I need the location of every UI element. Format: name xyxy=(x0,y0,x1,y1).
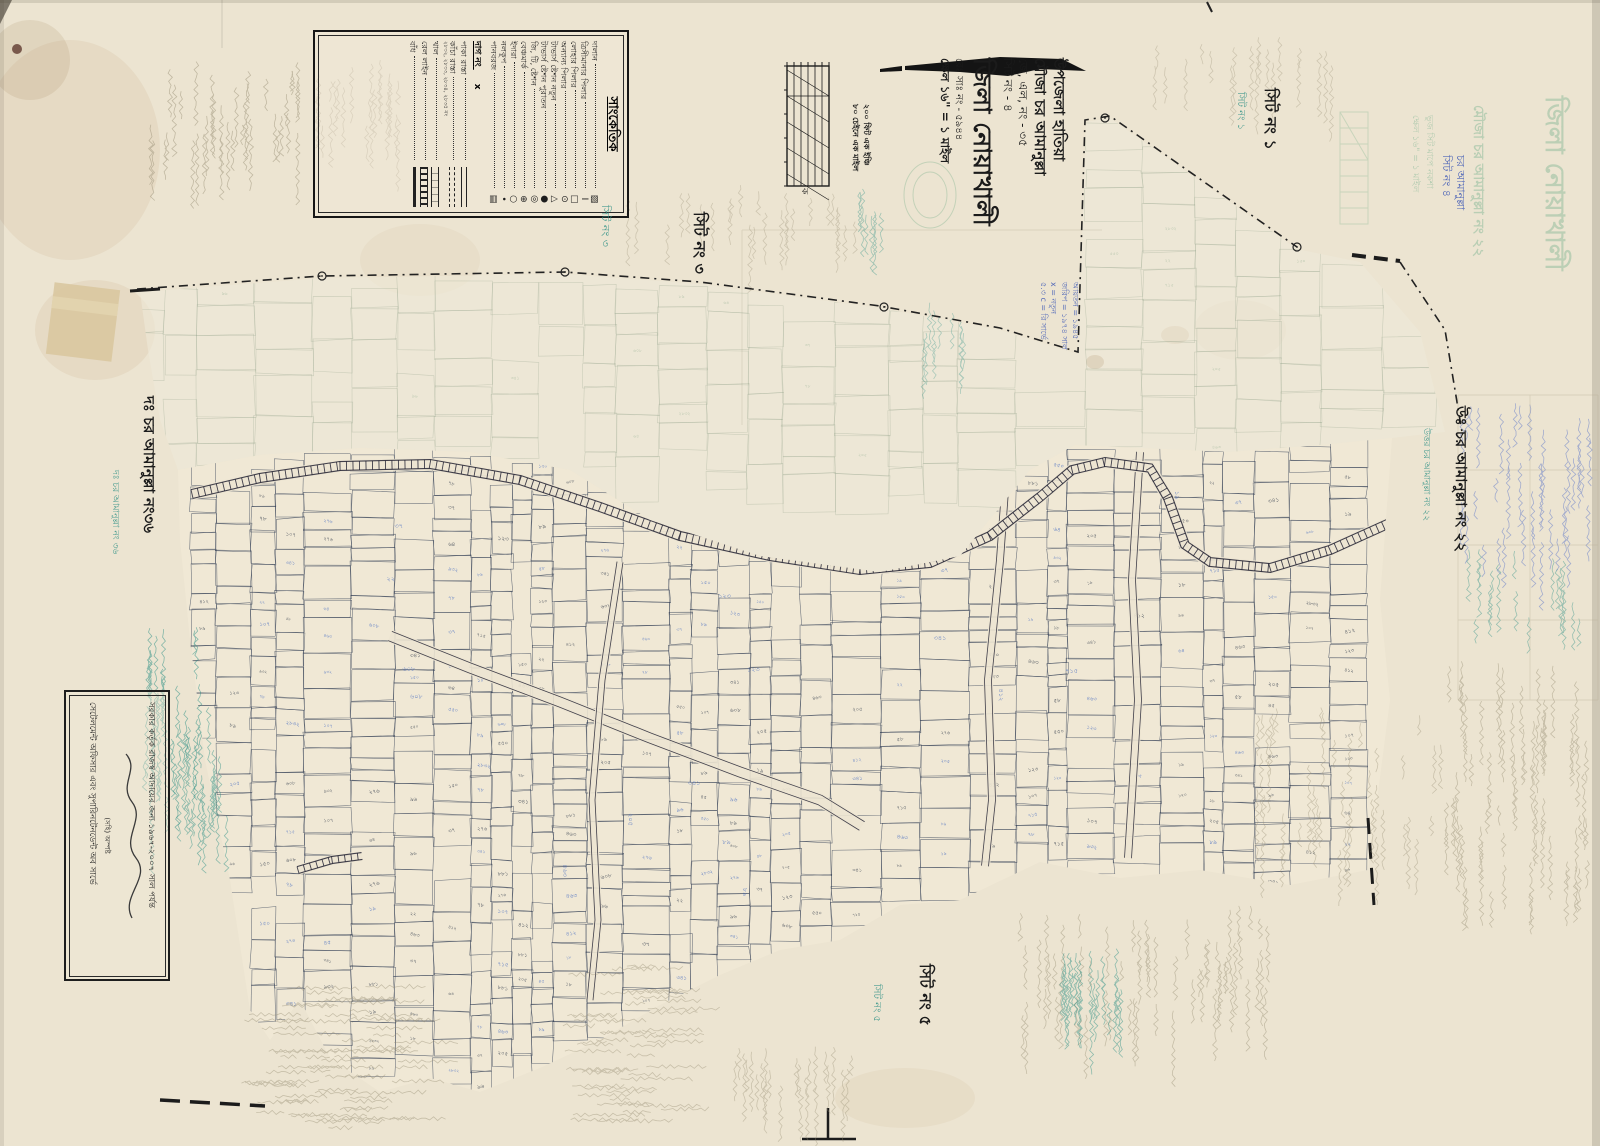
svg-text:৩৪১: ৩৪১ xyxy=(511,376,520,381)
legend-leader xyxy=(514,62,515,188)
ghost-district-label: জিলা নোয়াখালী xyxy=(1520,96,1575,346)
svg-text:২২: ২২ xyxy=(387,575,395,583)
svg-text:৮৯: ৮৯ xyxy=(722,838,731,846)
svg-text:৩৭: ৩৭ xyxy=(676,628,682,634)
stamp-line-1: সরকার কর্তৃক রাজস্ব আদায়ের জন্য ১৯৬৭-২০… xyxy=(144,702,158,969)
svg-text:৭১৫: ৭১৫ xyxy=(1065,667,1078,675)
sheet-label-5-handwritten: সিট নং ৫ xyxy=(868,984,884,1050)
svg-text:৩৭: ৩৭ xyxy=(805,344,811,349)
legend-item: লোহার পিলার□ xyxy=(569,41,579,207)
svg-text:৭১৫: ৭১৫ xyxy=(852,911,861,917)
legend-line-item: বাঁধ xyxy=(408,41,417,207)
svg-text:৭৮: ৭৮ xyxy=(448,595,456,601)
stamp-signature-area: (সহি) অস্পষ্ট xyxy=(101,702,142,969)
legend-leader xyxy=(545,111,546,188)
svg-text:৭১৫: ৭১৫ xyxy=(1165,284,1174,289)
legend-item-symbol-icon: □ xyxy=(569,191,579,207)
svg-text:২২: ২২ xyxy=(538,657,544,663)
signature-squiggle xyxy=(116,746,142,926)
svg-text:৯৬: ৯৬ xyxy=(1178,614,1184,619)
svg-text:১০৭: ১০৭ xyxy=(259,622,270,628)
legend-item-label: ইদারা xyxy=(509,41,518,59)
svg-text:৮৮১: ৮৮১ xyxy=(518,953,528,958)
certification-stamp-box: সরকার কর্তৃক রাজস্ব আদায়ের জন্য ১৯৬৭-২০… xyxy=(64,690,170,981)
legend-item-label: অন্যান্য পিলার xyxy=(559,41,568,88)
svg-text:৩৭: ৩৭ xyxy=(448,505,456,512)
north-mouza-label: উঃ চর আমানুল্লা নং ২২ xyxy=(1434,406,1472,652)
svg-text:৮৮১: ৮৮১ xyxy=(498,871,509,877)
svg-text:২০৫: ২০৫ xyxy=(627,813,635,826)
legend-leader xyxy=(436,58,437,160)
legend-item: নলকূপ• xyxy=(498,41,508,207)
legend-item-symbol-icon: △ xyxy=(549,191,559,207)
svg-text:৪৬৩: ৪৬৩ xyxy=(642,636,650,641)
legend-item-label: জি, টি, ষ্টেশন xyxy=(529,41,538,86)
svg-text:২৭৬: ২৭৬ xyxy=(477,826,488,832)
legend-leader xyxy=(565,91,566,188)
svg-text:৫৮: ৫৮ xyxy=(897,737,905,744)
svg-text:৭৮: ৭৮ xyxy=(642,671,648,676)
title-block: উপজেলা হাতিয়া মৌজা চর আমানুল্লা জে, এল,… xyxy=(893,58,1068,300)
svg-text:১২৩: ১২৩ xyxy=(747,665,760,673)
svg-text:৮৯: ৮৯ xyxy=(199,627,205,632)
legend-item-symbol-icon: ⊙ xyxy=(559,191,569,207)
svg-text:৪১২: ৪১২ xyxy=(199,600,209,605)
svg-text:১৫০: ১৫০ xyxy=(410,676,419,681)
legend-leader xyxy=(555,104,556,188)
svg-text:১৫০: ১৫০ xyxy=(518,663,527,669)
legend-item: টাভার্স ষ্টেশন নতুন△ xyxy=(549,41,559,207)
svg-text:৩৭: ৩৭ xyxy=(394,522,402,530)
dag-label: দাগ নং xyxy=(472,41,482,67)
legend-item: ত্রিসীমানার পিলারI xyxy=(579,41,589,207)
legend-item-symbol-icon: I xyxy=(579,191,589,207)
svg-text:৯৬: ৯৬ xyxy=(676,807,684,814)
svg-text:৩৭: ৩৭ xyxy=(756,886,764,893)
svg-text:১২৩: ১২৩ xyxy=(497,536,509,543)
svg-text:১৮: ১৮ xyxy=(1178,583,1186,589)
svg-text:৪১২: ৪১২ xyxy=(566,931,577,938)
legend-leader xyxy=(453,77,454,160)
svg-text:১২৩: ১২৩ xyxy=(718,592,731,600)
svg-text:৭১৫: ৭১৫ xyxy=(497,962,509,969)
blue-title-note-line: ৫.৩ c = রি সার্ভে xyxy=(1037,282,1048,366)
svg-text:২৮৩২: ২৮৩২ xyxy=(679,412,691,417)
svg-text:১২৩: ১২৩ xyxy=(538,599,547,605)
stamp-line-2: সেটেলমেন্ট অফিসার এবং সুপারিনটেনডেন্ট অব… xyxy=(85,702,99,969)
svg-text:৪৫: ৪৫ xyxy=(323,940,331,947)
legend-line-symbol-icon xyxy=(420,167,428,207)
svg-text:৬০৮: ৬০৮ xyxy=(633,349,643,354)
svg-text:৩৪১: ৩৪১ xyxy=(1235,773,1244,779)
north-mouza-handwritten: উত্তর চর আমানুল্লা নং ২২ xyxy=(1420,428,1434,643)
svg-text:৯৬: ৯৬ xyxy=(477,1084,485,1091)
svg-text:৫৫০: ৫৫০ xyxy=(1053,729,1064,736)
svg-text:৯৩২: ৯৩২ xyxy=(1053,555,1062,561)
scale-text: ক্ষেল ১৬" = ১ মাইল xyxy=(937,58,952,300)
svg-text:৬৪: ৬৪ xyxy=(723,301,729,306)
legend-line-note: ২৮৩২, ২৮৩৩, ২৮৩৪, ২৮৩৫ নং xyxy=(442,41,448,207)
svg-text:১২৩: ১২৩ xyxy=(229,690,240,696)
scale-letter: ক xyxy=(798,188,812,208)
upazila-name: উপজেলা হাতিয়া xyxy=(1049,58,1068,300)
svg-text:৩৪১: ৩৪১ xyxy=(730,680,740,686)
svg-text:৭৮: ৭৮ xyxy=(477,1024,483,1029)
svg-text:১০৭: ১০৭ xyxy=(324,818,334,824)
svg-text:৮৯: ৮৯ xyxy=(730,820,737,826)
legend-leader xyxy=(595,64,596,188)
legend-leader xyxy=(585,102,586,188)
svg-text:৪৬৩: ৪৬৩ xyxy=(561,864,569,877)
svg-text:৫৮: ৫৮ xyxy=(1235,695,1243,701)
blue-corner-line-1: চর আমানুল্লা xyxy=(1453,155,1467,275)
legend-item-label: ত্রিসীমানার পিলার xyxy=(579,41,588,99)
svg-text:৪১২: ৪১২ xyxy=(997,689,1005,702)
blue-title-annotations: আয়তন = ১৯৪৫জরিপ = ১৯৭৪ সালx = নতুন৫.৩ c… xyxy=(1005,282,1080,366)
ghost-green-grid xyxy=(1340,112,1368,224)
svg-text:২০৫: ২০৫ xyxy=(852,707,862,713)
blue-title-note-line: আয়তন = ১৯৪৫ xyxy=(1069,282,1080,366)
svg-text:২০৫: ২০৫ xyxy=(1087,533,1097,539)
legend-leader xyxy=(465,78,466,160)
svg-text:৬৪: ৬৪ xyxy=(323,607,330,613)
svg-text:৫৫০: ৫৫০ xyxy=(498,741,509,748)
south-mouza-handwritten: দঃ চর আমানুল্লা নং ৩৬ xyxy=(108,470,123,660)
sheet-label-3: সিট নং ৩ xyxy=(678,212,712,304)
sheet-label-5: সিট নং ৫ xyxy=(902,964,938,1050)
svg-text:১২৩: ১২৩ xyxy=(1209,733,1217,738)
svg-text:১০৭: ১০৭ xyxy=(1344,734,1354,740)
svg-text:১৯: ১৯ xyxy=(369,906,377,913)
svg-text:৮৯: ৮৯ xyxy=(741,888,749,897)
scale-note-2: ৮০ চেইনে এক মাইল xyxy=(850,104,861,204)
svg-text:৯৬: ৯৬ xyxy=(730,914,738,920)
svg-text:১০৭: ১০৭ xyxy=(701,710,710,716)
svg-text:৩৭: ৩৭ xyxy=(448,629,456,636)
svg-text:৬৪: ৬৪ xyxy=(633,435,639,440)
scale-notes: ২০০ ফিট এক ইঞ্চি ৮০ চেইনে এক মাইল xyxy=(838,104,872,204)
sheet-label-3-handwritten: সিট নং ৩ xyxy=(596,205,614,295)
svg-text:৯৬: ৯৬ xyxy=(410,797,418,803)
svg-text:২২: ২২ xyxy=(676,544,683,551)
legend-item-symbol-icon: ▤ xyxy=(488,191,498,207)
svg-text:৮৯: ৮৯ xyxy=(941,822,947,827)
svg-text:২৭৬: ২৭৬ xyxy=(730,876,740,882)
blue-corner-annotation: চর আমানুল্লা সিট নং ৪ xyxy=(1437,155,1467,275)
legend-leader xyxy=(524,72,525,188)
svg-text:৪৫: ৪৫ xyxy=(1268,703,1275,709)
legend-line-label: খাল xyxy=(431,41,440,55)
registry-number: রেঃ সাঃ নং - ৫৯৪৪ xyxy=(952,58,965,300)
svg-text:৮৮১: ৮৮১ xyxy=(1028,481,1039,488)
svg-text:১৫০: ১৫০ xyxy=(1297,260,1306,265)
svg-text:২০৫: ২০৫ xyxy=(782,864,790,869)
svg-text:৪৫: ৪৫ xyxy=(700,795,707,801)
svg-text:১৯: ১৯ xyxy=(1178,763,1184,768)
dag-symbol: x xyxy=(472,84,482,90)
svg-text:১৯: ১৯ xyxy=(941,852,947,857)
svg-text:১০৭: ১০৭ xyxy=(285,532,296,539)
svg-text:২৭৬: ২৭৬ xyxy=(941,731,951,736)
svg-text:১২৩: ১২৩ xyxy=(1344,755,1353,761)
svg-text:১৫০: ১৫০ xyxy=(701,580,711,586)
svg-text:২০৫: ২০৫ xyxy=(1212,367,1221,372)
tape-piece xyxy=(46,282,120,362)
svg-text:২৭৬: ২৭৬ xyxy=(642,855,653,862)
svg-text:৮৯: ৮৯ xyxy=(477,572,484,578)
legend-item: জি, টি, ষ্টেশন◎ xyxy=(528,41,538,207)
legend-item-label: লোহার পিলার xyxy=(569,41,578,87)
svg-text:১০৭: ১০৭ xyxy=(642,998,651,1004)
ghost-scale-note: ভুজ সিট মাপে নকশা ক্ষেল ১৬" = ১ মাইল xyxy=(1405,115,1435,265)
legend-line-item: কাঁচা রাস্তা xyxy=(448,41,457,207)
svg-text:২৭৬: ২৭৬ xyxy=(601,548,610,553)
legend-title: সাংকেতিক xyxy=(601,41,622,207)
svg-text:৩৭: ৩৭ xyxy=(642,942,650,948)
svg-text:৪৫: ৪৫ xyxy=(538,980,544,985)
stamp-signature-label: (সহি) অস্পষ্ট xyxy=(101,702,113,969)
legend-leader xyxy=(414,56,415,160)
pencil-notes-bottom-right xyxy=(1018,906,1270,1087)
svg-text:৯৩২: ৯৩২ xyxy=(323,984,334,991)
svg-text:২২: ২২ xyxy=(259,600,265,605)
legend-line-item: রেল লাইন xyxy=(419,41,428,207)
legend-line-symbol-icon xyxy=(461,167,467,207)
svg-text:১৯: ১৯ xyxy=(1028,617,1034,622)
pencil-notes-right-margin xyxy=(1444,661,1589,934)
legend-item: ইদারা○ xyxy=(508,41,518,207)
legend-dag-row: দাগ নং x xyxy=(470,41,485,207)
legend-line-item: খাল xyxy=(431,41,440,207)
svg-text:৬৪: ৬৪ xyxy=(1178,648,1185,654)
svg-text:৬০৮: ৬০৮ xyxy=(730,708,741,714)
stamp-content: সরকার কর্তৃক রাজস্ব আদায়ের জন্য ১৯৬৭-২০… xyxy=(70,698,160,973)
svg-text:৭৮: ৭৮ xyxy=(1028,832,1036,838)
svg-text:২২: ২২ xyxy=(897,683,903,688)
svg-text:৩৪১: ৩৪১ xyxy=(1267,879,1279,887)
blue-corner-line-2: সিট নং ৪ xyxy=(1438,155,1452,275)
svg-text:৭১৫: ৭১৫ xyxy=(1053,841,1064,847)
svg-text:৬০৮: ৬০৮ xyxy=(410,692,423,700)
legend-item-symbol-icon: • xyxy=(498,191,508,207)
blue-cursive-right-table xyxy=(1460,403,1593,610)
svg-text:২০৫: ২০৫ xyxy=(858,454,867,459)
svg-text:৪১২: ৪১২ xyxy=(566,643,575,648)
legend-leader xyxy=(535,89,536,188)
svg-text:৮৯: ৮৯ xyxy=(897,863,903,868)
scale-note-1: ২০০ ফিট এক ইঞ্চি xyxy=(861,104,872,204)
legend-line-symbol-icon xyxy=(449,167,455,207)
legend-line-symbol-icon xyxy=(410,167,416,207)
svg-text:২২: ২২ xyxy=(410,912,417,917)
sheet-number: সিট নং - ৪ xyxy=(1001,58,1016,300)
legend-item: টাভার্স ষ্টেশন পুরাতন● xyxy=(539,41,549,207)
legend-item-symbol-icon: ○ xyxy=(508,191,518,207)
svg-text:৩৪১: ৩৪১ xyxy=(688,779,701,787)
legend-item: অন্যান্য পিলার⊙ xyxy=(559,41,569,207)
svg-text:৭১৫: ৭১৫ xyxy=(286,830,295,835)
svg-text:৯৬: ৯৬ xyxy=(730,797,738,803)
blue-title-note-line: x = নতুন xyxy=(1048,282,1059,366)
legend-leader xyxy=(494,73,495,188)
svg-text:৯৬: ৯৬ xyxy=(229,861,235,866)
svg-text:৩৭: ৩৭ xyxy=(409,958,417,965)
legend-line-label: রেল লাইন xyxy=(419,41,428,75)
legend-item-symbol-icon: ⊕ xyxy=(518,191,528,207)
legend-box: সাংকেতিক দালান▨ত্রিসীমানার পিলারIলোহার প… xyxy=(313,30,629,218)
svg-text:৭১৫: ৭১৫ xyxy=(897,805,907,811)
svg-text:৯৩২: ৯৩২ xyxy=(324,789,333,795)
legend-item-symbol-icon: ◎ xyxy=(528,191,538,207)
svg-text:৮৯: ৮৯ xyxy=(1209,840,1217,846)
svg-text:৩৪১: ৩৪১ xyxy=(286,561,295,566)
svg-text:৩৪১: ৩৪১ xyxy=(852,867,862,873)
svg-text:৫৫০: ৫৫০ xyxy=(812,911,822,917)
legend-line-label: পাকা রাস্তা xyxy=(459,41,468,75)
svg-text:৬০৮: ৬০৮ xyxy=(286,857,297,864)
svg-text:১৮: ১৮ xyxy=(1053,626,1060,632)
svg-text:৮৯: ৮৯ xyxy=(756,787,762,792)
svg-text:১৯: ১৯ xyxy=(1344,511,1351,518)
blue-title-note-line: জরিপ = ১৯৭৪ সাল xyxy=(1058,282,1069,366)
sheet-label-1: সিট নং ১ xyxy=(1247,88,1283,183)
legend-item-label: দালান xyxy=(589,41,598,61)
scanned-map-sheet: ৯৬৯৬৩৪১৬০৮৬৪৮৯২৮৩২৬৪৩৭৭৮২০৫৫৫০২৮৩২২২৭১৫২… xyxy=(0,0,1600,1146)
svg-text:২২: ২২ xyxy=(676,898,684,905)
svg-text:২০৫: ২০৫ xyxy=(600,760,610,767)
svg-text:৪৬৩: ৪৬৩ xyxy=(1212,445,1222,450)
faint-margin-table xyxy=(1458,395,1598,700)
svg-text:৬০৮: ৬০৮ xyxy=(1306,529,1315,535)
svg-text:১২৩: ১২৩ xyxy=(1053,775,1061,780)
svg-text:৬৪: ৬৪ xyxy=(448,992,454,997)
legend-leader xyxy=(425,78,426,160)
svg-text:৮৮১: ৮৮১ xyxy=(369,982,379,988)
mouza-name: মৌজা চর আমানুল্লা xyxy=(1031,58,1050,300)
svg-text:৭৮: ৭৮ xyxy=(259,516,267,523)
svg-text:৩৪১: ৩৪১ xyxy=(676,975,687,981)
legend-leader xyxy=(575,90,576,188)
svg-text:৩৪১: ৩৪১ xyxy=(934,634,947,642)
svg-text:১৫০: ১৫০ xyxy=(1268,595,1277,600)
svg-text:৫৮: ৫৮ xyxy=(676,730,684,736)
svg-text:২২: ২২ xyxy=(1165,259,1171,264)
svg-text:৩৪১: ৩৪১ xyxy=(477,850,486,855)
legend-item-label: পানবরজ xyxy=(489,41,498,70)
legend-item: বেঞ্চমার্ক⊕ xyxy=(518,41,528,207)
svg-text:৫৮: ৫৮ xyxy=(1053,698,1061,704)
svg-text:৯৬: ৯৬ xyxy=(410,851,418,857)
map-canvas: ৯৬৯৬৩৪১৬০৮৬৪৮৯২৮৩২৬৪৩৭৭৮২০৫৫৫০২৮৩২২২৭১৫২… xyxy=(0,0,1600,1146)
svg-text:৬০৮: ৬০৮ xyxy=(286,781,297,788)
diagonal-scale-figure xyxy=(784,62,829,200)
teal-notes-bottom-right xyxy=(1060,949,1123,1075)
svg-text:৮৯: ৮৯ xyxy=(538,1028,544,1033)
svg-text:৮৯: ৮৯ xyxy=(700,622,707,628)
svg-text:৩৪১: ৩৪১ xyxy=(518,799,529,805)
svg-text:৪১২: ৪১২ xyxy=(518,922,530,929)
svg-text:১৫০: ১৫০ xyxy=(259,921,270,927)
svg-text:৩৭: ৩৭ xyxy=(1053,580,1060,586)
legend-item: পানবরজ▤ xyxy=(488,41,498,207)
legend-item-label: নলকূপ xyxy=(499,41,508,63)
svg-text:৪৬৩: ৪৬৩ xyxy=(1086,696,1097,703)
jl-number: জে, এল, নং - ৩৫ xyxy=(1016,58,1031,300)
svg-text:৬০৮: ৬০৮ xyxy=(403,665,416,673)
legend-line-item: পাকা রাস্তা xyxy=(459,41,468,207)
svg-text:৪৬৩: ৪৬৩ xyxy=(566,893,578,900)
legend-line-label: কাঁচা রাস্তা xyxy=(448,41,457,74)
svg-text:৯৩২: ৯৩২ xyxy=(259,668,268,674)
south-mouza-label: দঃ চর আমানুল্লা নং৩৬ xyxy=(122,396,160,642)
sheet-label-1-handwritten: সিট নং ১ xyxy=(1232,92,1248,172)
svg-text:৭৮: ৭৮ xyxy=(477,787,485,794)
svg-text:৩৭: ৩৭ xyxy=(477,1053,483,1059)
legend-items: দালান▨ত্রিসীমানার পিলারIলোহার পিলার□অন্য… xyxy=(488,41,599,207)
legend-item-label: টাভার্স ষ্টেশন নতুন xyxy=(549,41,558,101)
district-name: জিলা নোয়াখালী xyxy=(967,58,998,300)
svg-text:৯৩২: ৯৩২ xyxy=(324,669,333,674)
legend-content: সাংকেতিক দালান▨ত্রিসীমানার পিলারIলোহার প… xyxy=(318,35,624,211)
legend-item-label: টাভার্স ষ্টেশন পুরাতন xyxy=(539,41,548,108)
legend-item: দালান▨ xyxy=(589,41,599,207)
ghost-note-2: ক্ষেল ১৬" = ১ মাইল xyxy=(1408,115,1422,265)
ghost-note-1: ভুজ সিট মাপে নকশা xyxy=(1422,115,1436,265)
svg-text:২৮৩২: ২৮৩২ xyxy=(448,1068,459,1074)
svg-text:৮৯: ৮৯ xyxy=(476,732,484,739)
legend-item-symbol-icon: ● xyxy=(539,191,549,207)
legend-line-symbol-icon xyxy=(431,167,439,207)
svg-text:৬৪: ৬৪ xyxy=(448,542,455,548)
svg-text:২৮৩২: ২৮৩২ xyxy=(1165,227,1177,232)
svg-text:৪৬৩: ৪৬৩ xyxy=(1235,751,1245,756)
legend-line-items: পাকা রাস্তাকাঁচা রাস্তা২৮৩২, ২৮৩৩, ২৮৩৪,… xyxy=(408,41,468,207)
legend-item-label: বেঞ্চমার্ক xyxy=(519,41,528,69)
svg-text:৩৪১: ৩৪১ xyxy=(852,776,863,783)
legend-line-label: বাঁধ xyxy=(408,41,417,53)
svg-text:৬০৮: ৬০৮ xyxy=(498,722,507,727)
legend-leader xyxy=(504,66,505,188)
svg-text:৫৫০: ৫৫০ xyxy=(1110,252,1119,257)
